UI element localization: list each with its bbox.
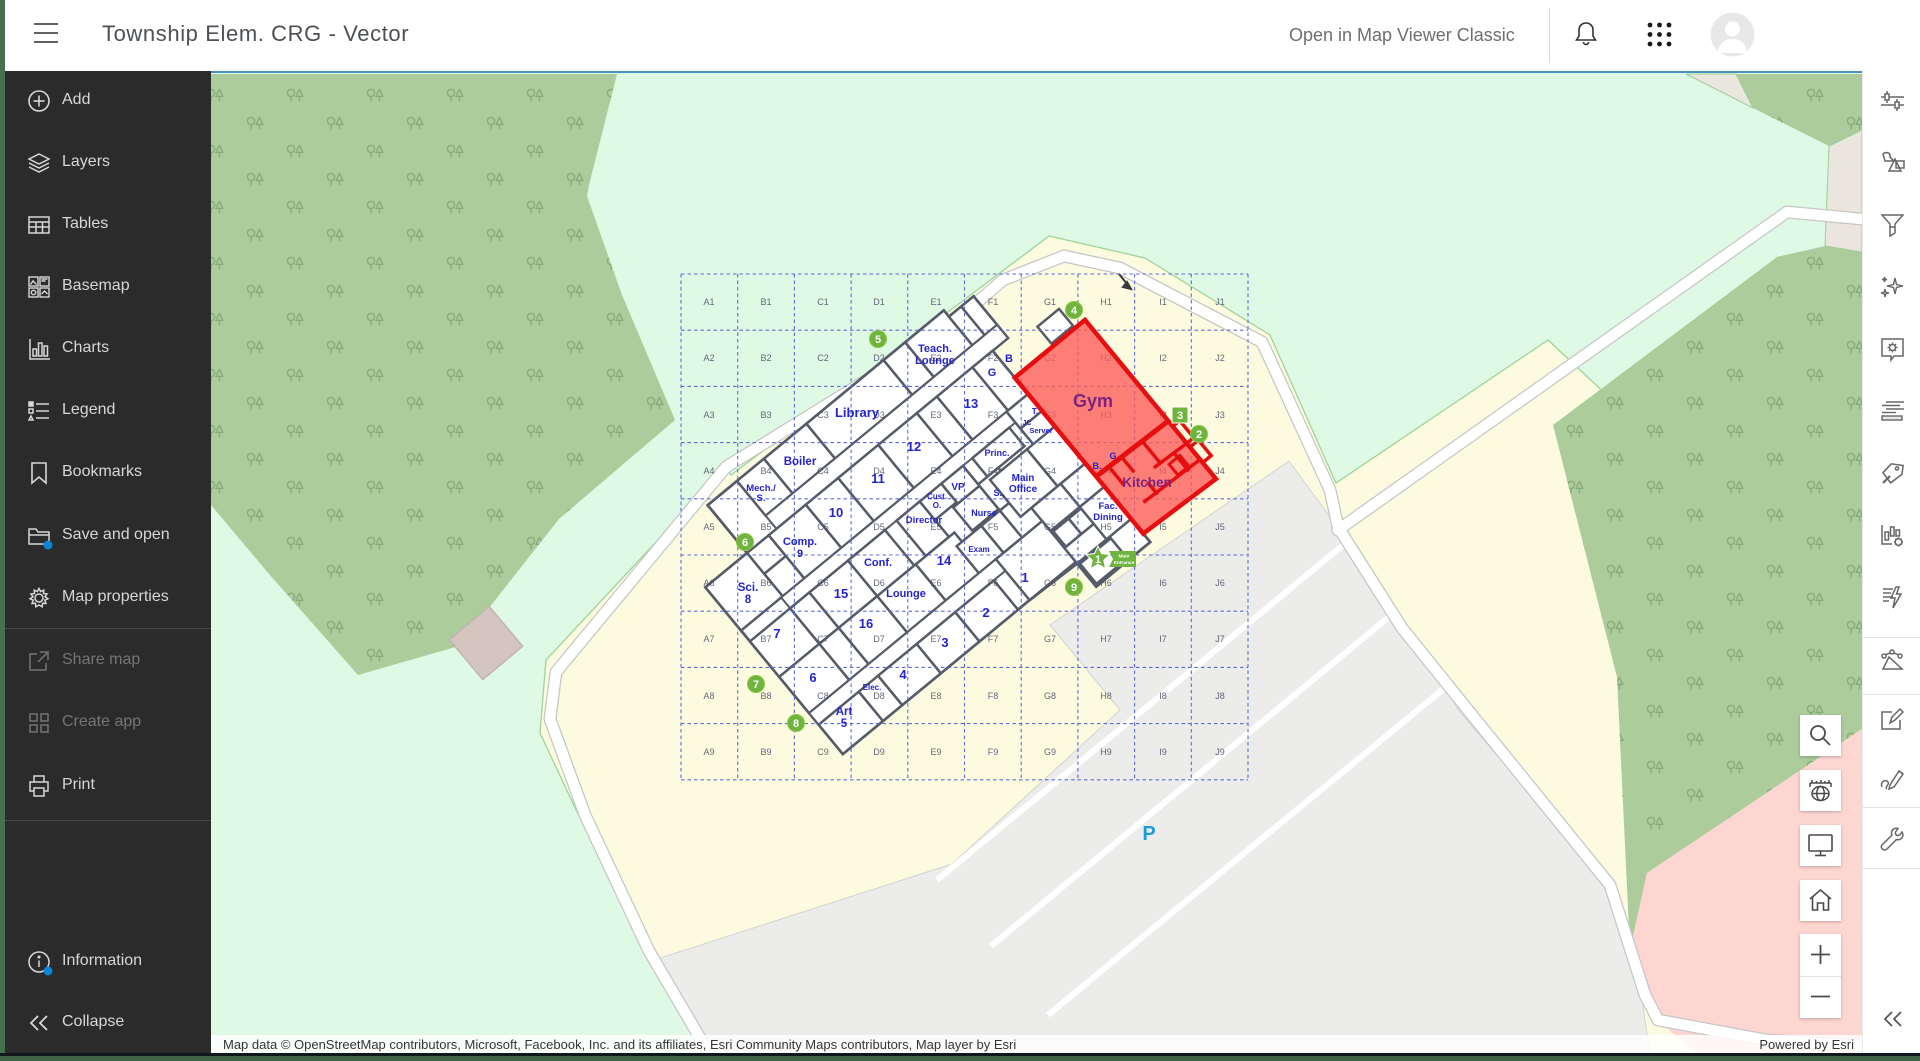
svg-text:Elec.: Elec. (863, 683, 882, 692)
svg-text:Nurse: Nurse (971, 508, 997, 518)
svg-text:I2: I2 (1159, 353, 1167, 363)
svg-text:E7: E7 (930, 634, 941, 644)
svg-text:C5: C5 (817, 522, 829, 532)
svg-text:8: 8 (745, 594, 752, 606)
svg-text:C3: C3 (817, 410, 829, 420)
svg-text:3: 3 (941, 635, 948, 650)
svg-text:2: 2 (982, 605, 989, 620)
svg-text:E8: E8 (930, 691, 941, 701)
svg-text:J4: J4 (1215, 466, 1225, 476)
svg-text:Princ.: Princ. (984, 448, 1009, 458)
svg-text:G: G (988, 367, 997, 379)
svg-text:B9: B9 (760, 747, 771, 757)
svg-text:F1: F1 (988, 297, 999, 307)
svg-text:5: 5 (875, 334, 881, 346)
svg-text:F7: F7 (988, 634, 999, 644)
svg-text:Conf.: Conf. (864, 557, 892, 569)
svg-text:VP: VP (951, 482, 965, 493)
svg-text:Director: Director (906, 515, 943, 526)
svg-text:E1: E1 (930, 297, 941, 307)
svg-text:Server: Server (1029, 426, 1052, 435)
svg-text:Boiler: Boiler (784, 456, 817, 468)
svg-text:Lounge: Lounge (886, 588, 926, 600)
svg-text:G4: G4 (1044, 466, 1056, 476)
svg-text:5: 5 (841, 718, 848, 730)
svg-text:H6: H6 (1100, 578, 1112, 588)
svg-text:B6: B6 (760, 578, 771, 588)
svg-text:Library: Library (835, 405, 880, 420)
svg-text:B: B (1005, 353, 1013, 365)
svg-text:I9: I9 (1159, 747, 1167, 757)
svg-text:D6: D6 (873, 578, 885, 588)
svg-text:B2: B2 (760, 353, 771, 363)
svg-text:C2: C2 (817, 353, 829, 363)
svg-text:G9: G9 (1044, 747, 1056, 757)
svg-text:I8: I8 (1159, 691, 1167, 701)
svg-text:A2: A2 (703, 353, 714, 363)
svg-text:B3: B3 (760, 410, 771, 420)
svg-text:A4: A4 (703, 466, 714, 476)
svg-text:H7: H7 (1100, 634, 1112, 644)
svg-text:9: 9 (1071, 582, 1077, 594)
svg-text:O.: O. (933, 501, 941, 510)
svg-text:B1: B1 (760, 297, 771, 307)
svg-text:F6: F6 (988, 578, 999, 588)
svg-text:G5: G5 (1044, 522, 1056, 532)
svg-text:S.,: S., (993, 488, 1004, 498)
svg-text:G7: G7 (1044, 634, 1056, 644)
svg-text:B.: B. (1093, 461, 1102, 471)
svg-text:D1: D1 (873, 297, 885, 307)
svg-text:C8: C8 (817, 691, 829, 701)
svg-text:A7: A7 (703, 634, 714, 644)
svg-text:I1: I1 (1159, 297, 1167, 307)
svg-text:B8: B8 (760, 691, 771, 701)
svg-text:Art: Art (836, 706, 853, 718)
svg-text:C7: C7 (817, 634, 829, 644)
svg-text:J7: J7 (1215, 634, 1225, 644)
svg-text:I7: I7 (1159, 634, 1167, 644)
svg-text:16: 16 (859, 616, 873, 631)
svg-text:F2: F2 (988, 353, 999, 363)
svg-text:4: 4 (1071, 305, 1078, 317)
svg-text:C4: C4 (817, 466, 829, 476)
svg-text:I6: I6 (1159, 578, 1167, 588)
svg-text:Gym: Gym (1073, 391, 1113, 411)
svg-text:H5: H5 (1100, 522, 1112, 532)
svg-text:F5: F5 (988, 522, 999, 532)
svg-text:B7: B7 (760, 634, 771, 644)
svg-text:S.: S. (757, 493, 766, 504)
svg-text:14: 14 (937, 553, 952, 568)
svg-text:8: 8 (793, 718, 799, 730)
svg-text:13: 13 (964, 396, 978, 411)
svg-text:E6: E6 (930, 578, 941, 588)
svg-text:Teach.: Teach. (918, 343, 952, 355)
svg-text:C1: C1 (817, 297, 829, 307)
svg-text:A3: A3 (703, 410, 714, 420)
svg-text:1: 1 (1021, 570, 1028, 585)
svg-text:Fac.: Fac. (1098, 501, 1117, 512)
svg-text:H1: H1 (1100, 297, 1112, 307)
svg-text:E3: E3 (930, 410, 941, 420)
svg-text:J8: J8 (1215, 691, 1225, 701)
svg-text:F9: F9 (988, 747, 999, 757)
svg-text:J6: J6 (1215, 578, 1225, 588)
svg-text:D7: D7 (873, 634, 885, 644)
svg-text:7: 7 (753, 679, 759, 691)
svg-text:Exam: Exam (968, 545, 989, 554)
svg-text:D8: D8 (873, 691, 885, 701)
svg-text:D9: D9 (873, 747, 885, 757)
svg-text:P: P (1142, 823, 1155, 845)
svg-text:D5: D5 (873, 522, 885, 532)
svg-text:4: 4 (899, 667, 907, 682)
svg-text:A1: A1 (703, 297, 714, 307)
svg-text:6: 6 (742, 537, 748, 549)
svg-text:Sci.: Sci. (738, 582, 758, 594)
svg-text:G1: G1 (1044, 297, 1056, 307)
svg-text:H8: H8 (1100, 691, 1112, 701)
svg-text:Entrance: Entrance (1114, 560, 1135, 566)
svg-text:J2: J2 (1215, 353, 1225, 363)
svg-text:6: 6 (809, 670, 816, 685)
svg-text:H9: H9 (1100, 747, 1112, 757)
svg-text:A6: A6 (703, 578, 714, 588)
svg-text:T.: T. (1032, 407, 1038, 416)
svg-text:J3: J3 (1215, 410, 1225, 420)
svg-text:11: 11 (871, 471, 885, 486)
svg-text:7: 7 (773, 626, 780, 641)
svg-text:A5: A5 (703, 522, 714, 532)
svg-text:A8: A8 (703, 691, 714, 701)
svg-text:Cust.: Cust. (927, 492, 947, 501)
svg-text:2: 2 (1196, 429, 1202, 441)
svg-text:Dining: Dining (1093, 512, 1123, 523)
svg-text:F3: F3 (988, 410, 999, 420)
svg-text:B4: B4 (760, 466, 771, 476)
svg-text:C9: C9 (817, 747, 829, 757)
svg-text:Office: Office (1009, 484, 1038, 495)
svg-text:1: 1 (1095, 554, 1101, 566)
svg-text:Comp.: Comp. (783, 536, 817, 548)
svg-text:10: 10 (829, 505, 843, 520)
svg-text:D2: D2 (873, 353, 885, 363)
svg-text:G: G (1109, 451, 1116, 461)
svg-text:F4: F4 (988, 466, 999, 476)
svg-text:3: 3 (1177, 410, 1183, 422)
svg-text:E9: E9 (930, 747, 941, 757)
svg-text:Main: Main (1012, 473, 1035, 484)
svg-text:12: 12 (907, 439, 921, 454)
svg-text:15: 15 (834, 586, 848, 601)
svg-text:9: 9 (797, 548, 803, 560)
svg-text:B5: B5 (760, 522, 771, 532)
svg-text:J9: J9 (1215, 747, 1225, 757)
svg-text:J5: J5 (1215, 522, 1225, 532)
svg-text:C6: C6 (817, 578, 829, 588)
svg-text:G8: G8 (1044, 691, 1056, 701)
svg-text:J1: J1 (1215, 297, 1225, 307)
svg-text:A9: A9 (703, 747, 714, 757)
svg-text:Lounge: Lounge (915, 355, 955, 367)
svg-text:G6: G6 (1044, 578, 1056, 588)
svg-text:E4: E4 (930, 466, 941, 476)
svg-text:F8: F8 (988, 691, 999, 701)
svg-text:Kitchen: Kitchen (1122, 475, 1172, 490)
svg-text:Main: Main (1119, 554, 1130, 560)
